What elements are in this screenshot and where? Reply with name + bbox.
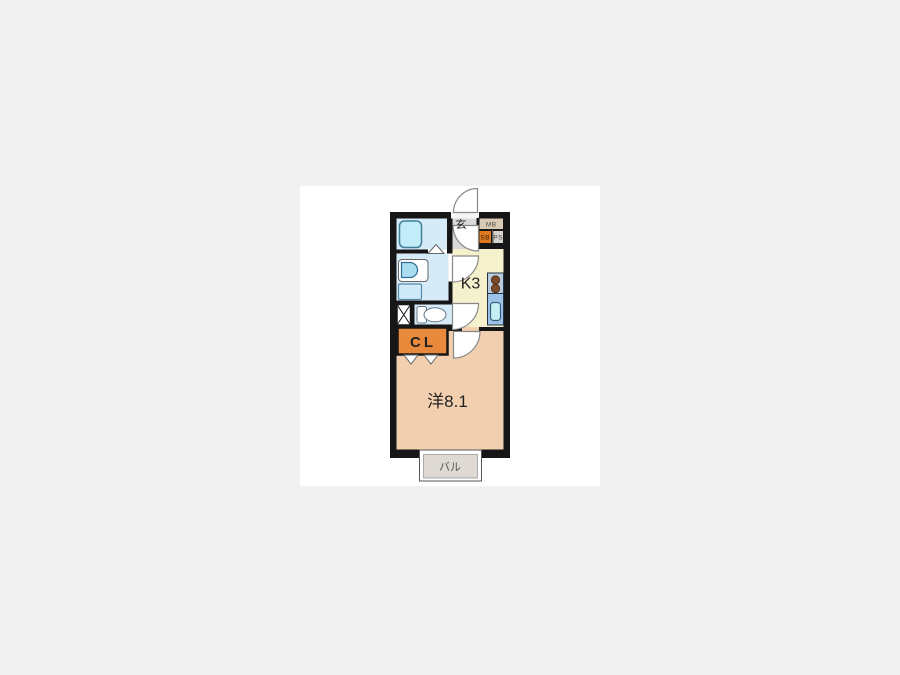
wall-bathroom-bottom — [397, 250, 429, 254]
stove-burner-bottom — [491, 284, 499, 292]
wall-under-utility-boxes — [479, 244, 504, 250]
entrance-label: 玄 — [456, 217, 467, 231]
wall-kitchen-room-right — [479, 327, 504, 331]
kitchen-label: K3 — [461, 276, 481, 293]
floorplan-svg: 玄 MB SB PS K3 CL 洋8.1 バル — [300, 186, 600, 486]
wall-bathroom-right — [447, 219, 453, 254]
bathtub — [400, 221, 422, 248]
wall-top-left — [390, 212, 451, 219]
balcony-label: バル — [439, 461, 461, 474]
wall-kitchen-left-mid — [449, 282, 453, 304]
kitchen-counter — [488, 273, 504, 325]
toilet — [417, 307, 446, 324]
washer-pan — [399, 284, 422, 300]
sink-basin — [491, 303, 501, 321]
page-background: { "floorplan": { "title": "1K apartment … — [0, 0, 900, 675]
shoe-box-label: SB — [480, 235, 490, 242]
shaft-box — [397, 305, 411, 326]
closet-label: CL — [410, 334, 436, 351]
washbasin — [399, 260, 429, 282]
meter-box-label: MB — [486, 222, 497, 229]
entrance-door-swing — [454, 189, 478, 213]
floorplan-canvas: 玄 MB SB PS K3 CL 洋8.1 バル — [300, 186, 600, 486]
western-room-label: 洋8.1 — [427, 392, 468, 411]
pipe-space-label: PS — [493, 235, 503, 242]
stove-burner-top — [491, 276, 499, 284]
wall-right — [504, 212, 511, 458]
wall-left — [390, 212, 397, 458]
